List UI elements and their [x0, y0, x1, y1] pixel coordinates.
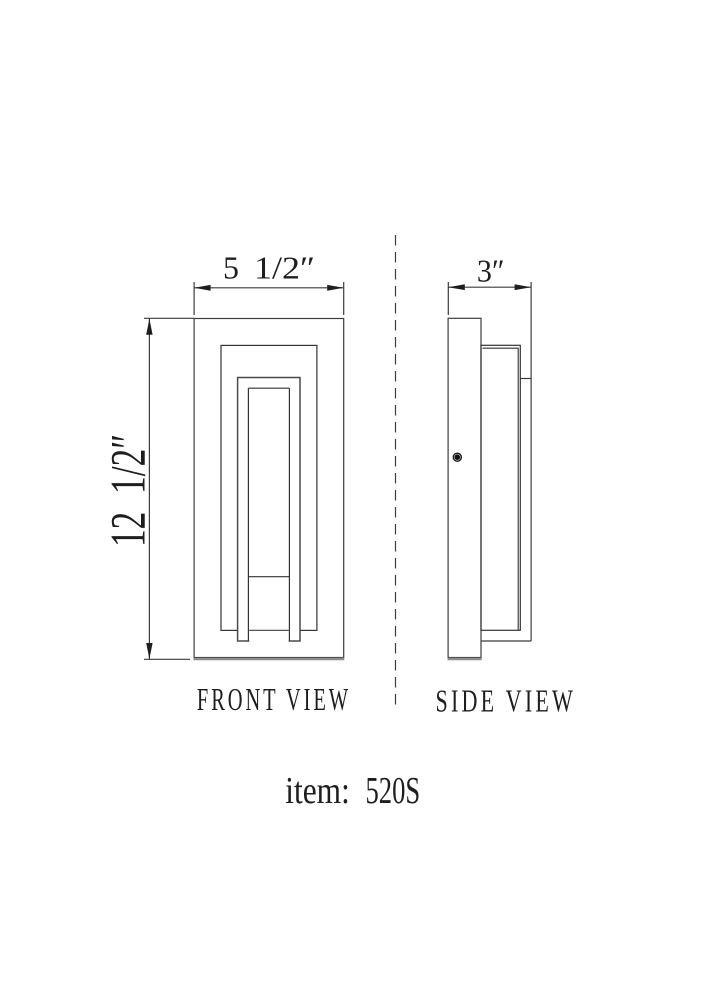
svg-text:item:: item: [285, 770, 350, 812]
svg-text:1/2″: 1/2″ [254, 250, 315, 286]
svg-text:FRONT VIEW: FRONT VIEW [197, 682, 351, 718]
svg-text:520S: 520S [366, 770, 421, 812]
svg-text:SIDE VIEW: SIDE VIEW [436, 684, 577, 719]
svg-text:3″: 3″ [477, 252, 505, 288]
svg-text:5: 5 [223, 250, 239, 286]
svg-text:12 1/2″: 12 1/2″ [100, 434, 156, 547]
